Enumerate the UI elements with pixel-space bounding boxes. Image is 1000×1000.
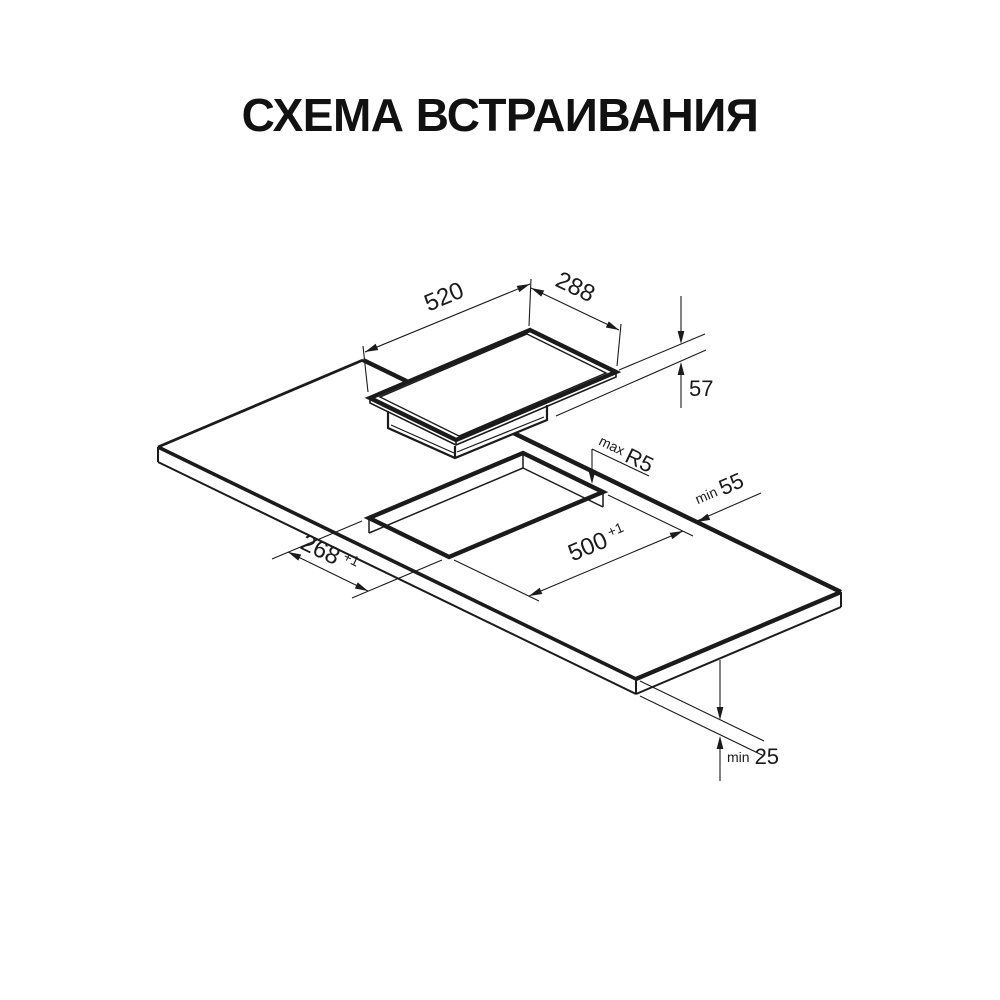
reference-line-top: [619, 334, 705, 370]
arrowhead: [717, 736, 724, 749]
arrowhead: [678, 331, 685, 344]
extension-line-left: [454, 560, 539, 601]
countertop-back-left-edge: [158, 360, 363, 447]
arrowhead: [530, 285, 545, 297]
dim-cutout-length: 500+1: [454, 495, 693, 601]
dim-label-max-r5: maxR5: [594, 430, 658, 478]
installation-scheme-page: СХЕМА ВСТРАИВАНИЯ 5: [0, 0, 1000, 1000]
countertop-front-left-edge: [158, 447, 636, 679]
cutout-inner-wall-left-bottom: [369, 468, 523, 533]
arrowhead: [589, 471, 596, 484]
countertop-bottom-front-edge: [158, 462, 636, 694]
extension-line-left: [363, 346, 368, 392]
dim-label-288: 288: [551, 266, 599, 308]
dim-rear-clearance: min55: [691, 467, 761, 525]
dim-label-min-55: min55: [691, 467, 748, 510]
countertop-front-right-edge: [636, 592, 841, 679]
arrowhead: [364, 344, 379, 355]
arrowhead: [670, 528, 685, 539]
page-title: СХЕМА ВСТРАИВАНИЯ: [242, 89, 759, 141]
dim-worktop-thickness: min25: [640, 660, 779, 781]
reference-line-top: [640, 681, 764, 741]
arrowhead: [678, 362, 685, 375]
extension-line-right: [529, 279, 531, 326]
reference-line-bottom: [640, 696, 764, 756]
arrowhead: [517, 281, 532, 292]
extension-line-right: [617, 324, 621, 366]
installation-diagram: СХЕМА ВСТРАИВАНИЯ 5: [0, 0, 1000, 1000]
hob: [370, 330, 616, 458]
dim-label-500: 500+1: [564, 519, 630, 567]
dim-label-57: 57: [689, 376, 713, 401]
arrowhead: [355, 582, 370, 594]
dim-label-520: 520: [420, 277, 467, 317]
dim-label-min-25: min25: [727, 744, 779, 769]
countertop-bottom-right-edge: [636, 607, 841, 694]
arrowhead: [528, 588, 543, 599]
arrowhead: [606, 321, 621, 333]
